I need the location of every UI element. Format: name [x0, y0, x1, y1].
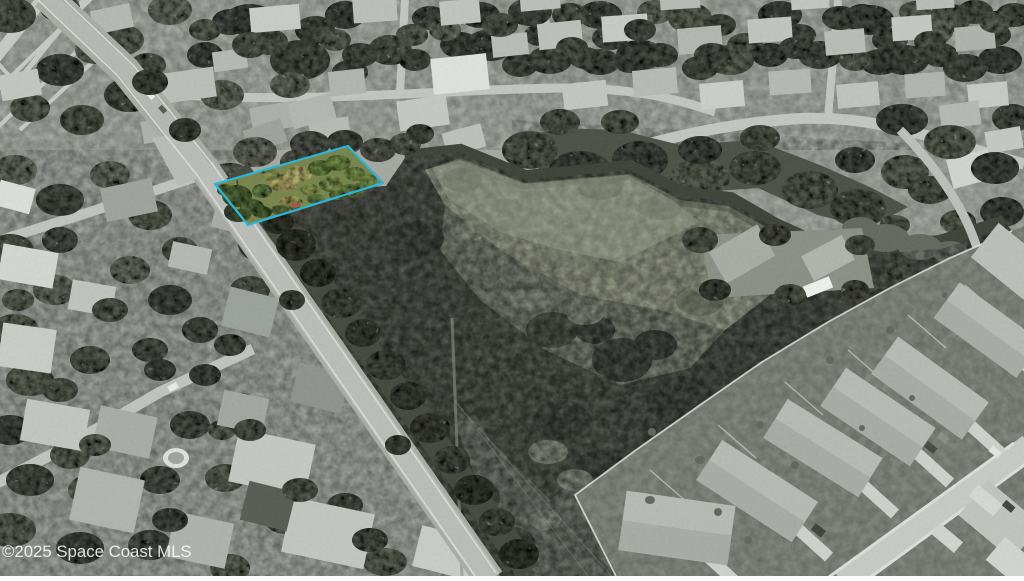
svg-text:©2025 Space Coast MLS: ©2025 Space Coast MLS — [2, 542, 192, 561]
